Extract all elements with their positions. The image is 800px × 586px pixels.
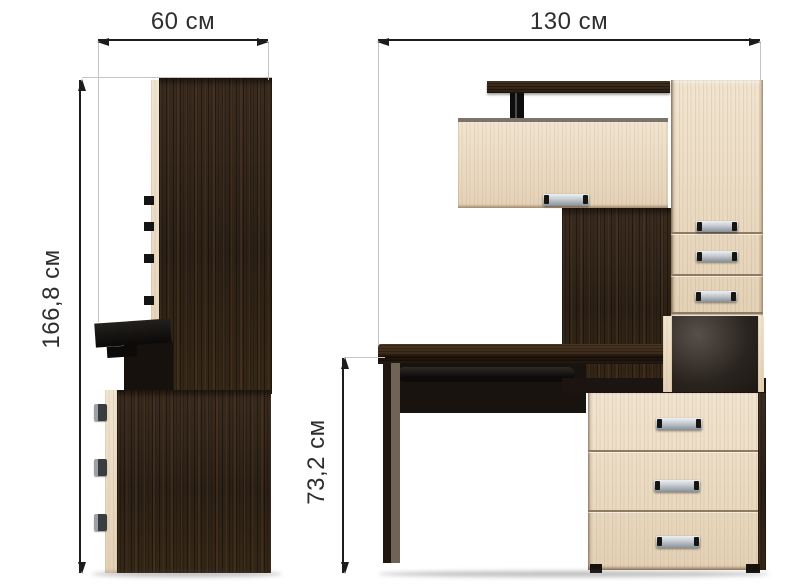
shelf-pin xyxy=(144,296,154,305)
niche-right-wall xyxy=(758,316,764,392)
side-panel-lower xyxy=(117,390,271,573)
open-niche xyxy=(672,316,758,392)
shelf-pin xyxy=(144,222,154,231)
extension-line xyxy=(760,42,761,80)
height-dimension-arrow xyxy=(79,80,81,573)
desk-height-label: 73,2 см xyxy=(303,397,331,527)
front-width-dimension-arrow xyxy=(378,39,760,41)
drawer-knob-side xyxy=(94,514,107,531)
desktop xyxy=(378,344,672,364)
tall-cabinet xyxy=(671,80,763,316)
drawer-knob-side xyxy=(94,404,107,421)
desk-height-dimension-arrow xyxy=(342,358,344,573)
drawer-handle xyxy=(656,418,702,430)
extension-line xyxy=(82,77,272,78)
tall-cabinet-door-handle xyxy=(696,221,738,232)
side-width-dimension-arrow xyxy=(98,39,268,41)
drawer-handle xyxy=(654,480,700,492)
wall-shelf xyxy=(487,81,670,93)
small-drawer-handle xyxy=(696,251,738,262)
floor-shadow xyxy=(378,571,770,577)
small-drawer-handle xyxy=(695,291,737,302)
side-panel-upper xyxy=(159,78,272,394)
side-width-label: 60 см xyxy=(123,8,243,36)
extension-line xyxy=(345,357,385,358)
niche-left-wall xyxy=(663,316,672,392)
floor-shadow xyxy=(92,571,282,577)
extension-line xyxy=(378,42,379,345)
cabinet-seam xyxy=(671,232,763,235)
drawer-seam xyxy=(588,450,758,453)
furniture-dimensions-diagram: 60 см 130 см 166,8 см 73,2 см xyxy=(0,0,800,586)
keyboard-tray xyxy=(397,367,575,382)
drawer-seam xyxy=(588,510,758,513)
height-label: 166,8 см xyxy=(38,234,66,364)
front-width-label: 130 см xyxy=(509,8,629,36)
extension-line xyxy=(268,42,269,80)
cabinet-seam xyxy=(671,312,763,316)
drawer-knob-side xyxy=(94,459,107,476)
extension-line xyxy=(98,42,99,322)
desk-bracket-side xyxy=(107,345,138,358)
pedestal-side-edge xyxy=(758,393,766,570)
cabinet-door-handle xyxy=(543,194,589,206)
shelf-pin xyxy=(144,254,154,263)
shelf-pin xyxy=(144,196,154,205)
shelf-bracket xyxy=(510,93,524,121)
drawer-handle xyxy=(656,536,700,548)
desk-leg xyxy=(383,363,400,563)
cabinet-seam xyxy=(671,274,763,277)
